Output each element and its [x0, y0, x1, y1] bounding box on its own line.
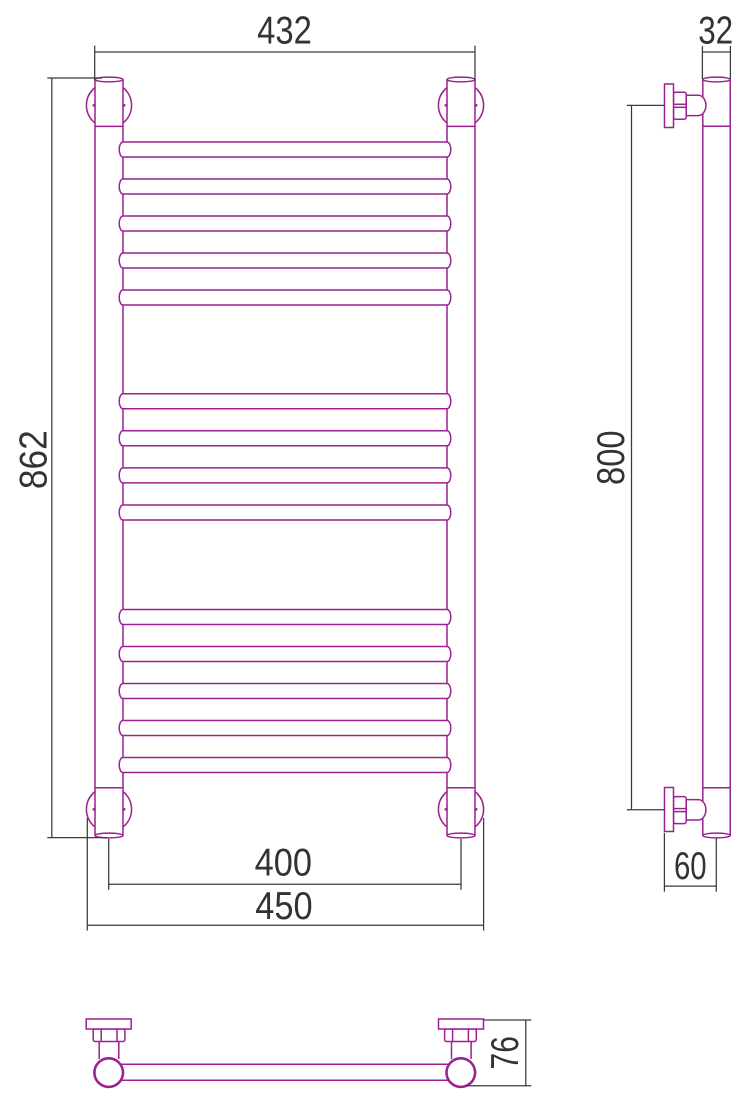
svg-text:432: 432	[257, 10, 312, 53]
svg-text:60: 60	[674, 845, 707, 888]
svg-text:800: 800	[590, 430, 633, 485]
svg-text:862: 862	[12, 430, 55, 489]
svg-text:400: 400	[255, 842, 312, 885]
svg-text:76: 76	[484, 1036, 527, 1069]
svg-text:32: 32	[698, 10, 733, 53]
svg-text:450: 450	[255, 885, 312, 928]
